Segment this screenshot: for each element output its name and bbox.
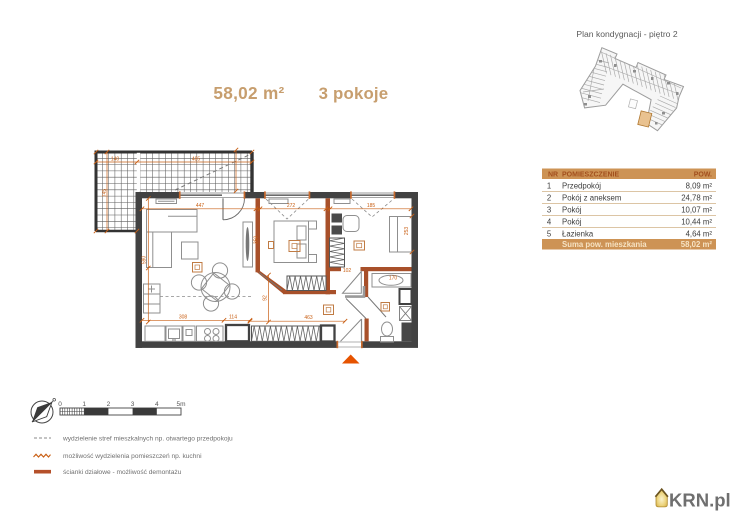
svg-text:KRN.pl: KRN.pl [669,490,731,511]
svg-text:745: 745 [102,189,108,198]
svg-text:8,09 m²: 8,09 m² [686,181,713,190]
svg-text:1: 1 [82,401,86,408]
svg-text:5m: 5m [176,401,185,408]
svg-text:2: 2 [547,193,551,202]
svg-text:Plan kondygnacji - piętro 2: Plan kondygnacji - piętro 2 [576,29,677,39]
svg-text:3 pokoje: 3 pokoje [319,84,389,103]
svg-text:Pokój z aneksem: Pokój z aneksem [562,193,621,202]
svg-text:170: 170 [389,276,398,282]
svg-text:272: 272 [287,203,296,209]
svg-text:140: 140 [111,157,120,163]
svg-text:5: 5 [547,229,552,238]
svg-text:350: 350 [254,236,260,245]
svg-text:463: 463 [304,315,313,321]
svg-text:114: 114 [229,315,237,321]
svg-text:24,78 m²: 24,78 m² [681,193,712,202]
svg-text:58,02 m²: 58,02 m² [681,240,713,249]
svg-text:Łazienka: Łazienka [562,229,594,238]
svg-text:POW.: POW. [694,171,712,178]
svg-text:102: 102 [343,268,352,274]
svg-text:92: 92 [263,295,269,301]
svg-text:możliwość wydzielenia pomieszc: możliwość wydzielenia pomieszczeń np. ku… [63,453,202,460]
svg-text:3: 3 [547,205,551,214]
svg-text:1: 1 [547,181,551,190]
svg-text:Przedpokój: Przedpokój [562,181,601,190]
svg-text:447: 447 [196,203,205,209]
svg-text:590: 590 [141,256,147,265]
svg-text:Suma pow. mieszkania: Suma pow. mieszkania [562,240,647,249]
svg-text:2: 2 [107,401,111,408]
svg-text:POMIESZCZENIE: POMIESZCZENIE [562,171,620,178]
svg-text:Pokój: Pokój [562,217,582,226]
svg-text:4: 4 [547,217,552,226]
svg-text:4,64 m²: 4,64 m² [686,229,713,238]
svg-text:485: 485 [192,157,201,163]
svg-text:wydzielenie stref mieszkalnych: wydzielenie stref mieszkalnych np. otwar… [62,436,233,443]
svg-text:0: 0 [58,401,62,408]
svg-text:185: 185 [367,203,376,209]
svg-text:10,44 m²: 10,44 m² [681,217,712,226]
svg-text:NR: NR [548,171,558,178]
svg-text:10,07 m²: 10,07 m² [681,205,712,214]
svg-text:58,02 m²: 58,02 m² [213,83,284,103]
svg-text:4: 4 [155,401,159,408]
svg-text:3: 3 [131,401,135,408]
svg-text:Pokój: Pokój [562,205,582,214]
svg-text:ścianki działowe - możliwość d: ścianki działowe - możliwość demontażu [63,469,182,476]
svg-text:253: 253 [404,227,410,236]
svg-text:308: 308 [179,315,188,321]
